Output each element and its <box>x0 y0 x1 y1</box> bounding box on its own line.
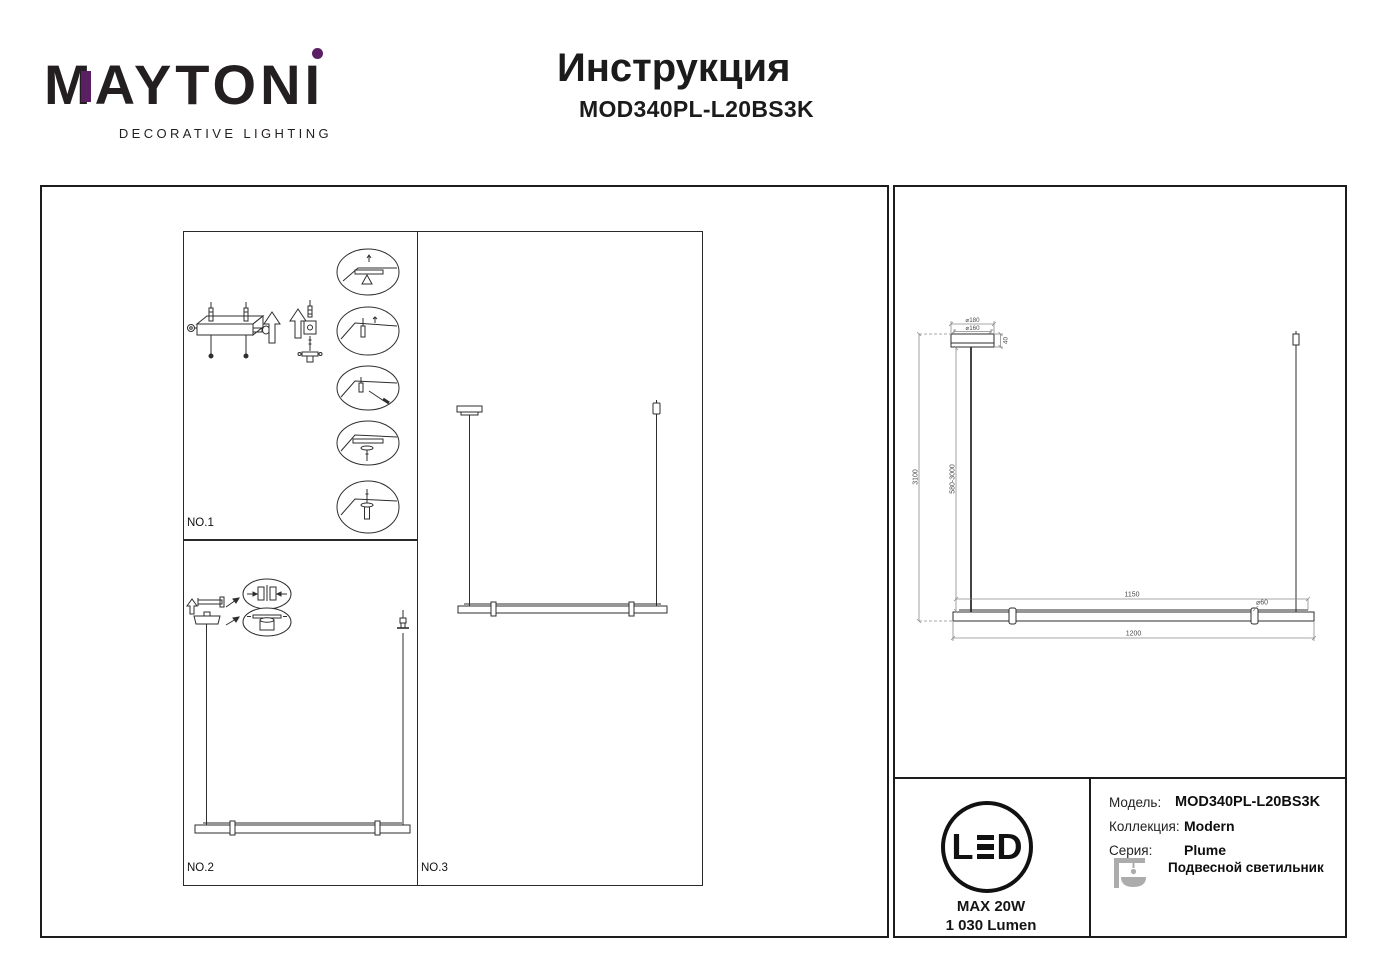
up-arrow-icon <box>187 599 197 614</box>
led-letter-l: L <box>952 829 974 865</box>
info-divider-vertical <box>1089 777 1091 938</box>
led-badge: L D <box>941 801 1033 893</box>
canopy <box>457 406 482 412</box>
model-value: MOD340PL-L20BS3K <box>1175 794 1320 810</box>
up-arrow-icon <box>264 312 280 343</box>
callout-4 <box>337 421 399 465</box>
info-divider-horizontal <box>893 777 1347 779</box>
step3-label: NO.3 <box>421 862 448 874</box>
step1-label: NO.1 <box>187 517 214 529</box>
dim-canopy-inner: ⌀160 <box>965 325 980 332</box>
page-title: Инструкция <box>557 48 814 88</box>
callout-canopy-cup <box>243 608 291 636</box>
callout-clamp <box>243 579 291 609</box>
callout-5 <box>337 481 399 533</box>
header-model-number: MOD340PL-L20BS3K <box>579 96 814 123</box>
brand-logo-word: M AYTON I <box>44 57 332 113</box>
dimension-drawing: ⌀180 ⌀160 40 3100 580-3000 1150 ⌀60 1200 <box>893 185 1347 777</box>
dim-canopy-outer: ⌀180 <box>965 317 980 324</box>
canopy <box>951 334 994 347</box>
collection-label: Коллекция: <box>1109 819 1180 834</box>
led-letter-d: D <box>997 829 1023 865</box>
callout-1 <box>337 249 399 295</box>
dim-length: 1200 <box>1126 631 1142 638</box>
callout-2 <box>337 307 399 355</box>
brand-logo: M AYTON I DECORATIVE LIGHTING <box>44 57 332 141</box>
logo-letters: AYTON <box>95 57 305 113</box>
step2-drawing <box>183 540 417 885</box>
logo-letter-i: I <box>305 57 325 113</box>
logo-letter-m: M <box>44 57 95 113</box>
pendant-lamp-icon <box>1112 850 1160 892</box>
step1-drawing <box>183 231 417 540</box>
dim-overall-height: 3100 <box>913 469 920 485</box>
led-letter-e-bars <box>977 835 994 860</box>
document-header: Инструкция MOD340PL-L20BS3K <box>557 48 814 123</box>
max-power: MAX 20W <box>893 898 1089 915</box>
step2-label: NO.2 <box>187 862 214 874</box>
callout-3 <box>337 366 399 410</box>
step3-drawing <box>417 231 702 885</box>
light-bar <box>458 606 667 613</box>
light-bar <box>953 612 1314 621</box>
brand-tagline: DECORATIVE LIGHTING <box>44 126 332 141</box>
dim-tube-diameter: ⌀60 <box>1256 600 1268 607</box>
dim-suspension-range: 580-3000 <box>950 464 957 494</box>
series-value: Plume <box>1184 842 1226 858</box>
dim-canopy-height: 40 <box>1003 337 1010 344</box>
luminous-flux: 1 030 Lumen <box>893 917 1089 934</box>
model-label: Модель: <box>1109 795 1161 810</box>
dim-span: 1150 <box>1124 592 1139 599</box>
fixture-type: Подвесной светильник <box>1168 860 1324 875</box>
collection-value: Modern <box>1184 818 1235 834</box>
instruction-sheet: M AYTON I DECORATIVE LIGHTING Инструкция… <box>0 0 1384 973</box>
canopy <box>194 616 220 624</box>
